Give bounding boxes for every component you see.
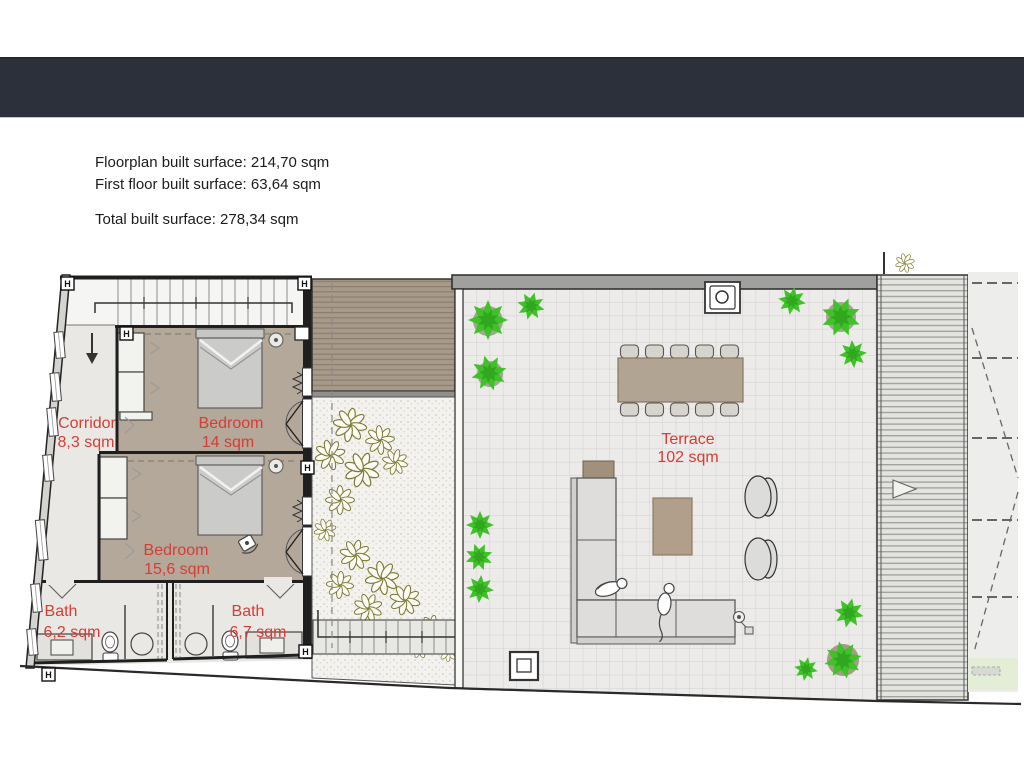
dining-chair <box>671 345 689 358</box>
dining-set <box>618 345 743 416</box>
skylight-icon <box>705 282 740 313</box>
svg-text:H: H <box>304 463 311 473</box>
dining-chair <box>721 403 739 416</box>
terrace-left-wall <box>455 289 463 688</box>
ceiling-light-icon <box>269 333 283 347</box>
bath-1-label: Bath <box>45 603 78 620</box>
ceiling-light-icon <box>269 459 283 473</box>
wall-marker: H <box>301 461 314 474</box>
room-terrace <box>452 275 877 701</box>
wall-nib <box>295 327 309 340</box>
plant-icon <box>892 250 918 276</box>
dining-table <box>618 358 743 402</box>
lounge-chair <box>745 476 777 518</box>
wall-marker: H <box>42 668 55 681</box>
site-margin-east <box>968 272 1018 692</box>
svg-text:H: H <box>64 279 71 289</box>
dining-chair <box>671 403 689 416</box>
wall-marker: H <box>298 277 311 290</box>
corridor-label: Corridor <box>58 415 116 432</box>
dining-chair <box>721 345 739 358</box>
svg-text:H: H <box>45 670 52 680</box>
sofa-headrest <box>583 461 614 478</box>
wall-marker: H <box>299 645 312 658</box>
bath-2-label: Bath <box>232 603 265 620</box>
bed-icon <box>196 456 264 535</box>
svg-text:H: H <box>301 279 308 289</box>
wall-marker: H <box>120 327 133 340</box>
terrace-top-wall <box>452 275 877 289</box>
lounge-chair <box>745 538 777 580</box>
wall-marker: H <box>61 277 74 290</box>
bedroom-2-area: 15,6 sqm <box>144 561 210 578</box>
terrace-label: Terrace <box>661 431 714 448</box>
bath-2-area: 6,7 sqm <box>230 624 287 641</box>
dining-chair <box>696 403 714 416</box>
coffee-table <box>653 498 692 555</box>
toilet-icon <box>102 632 118 661</box>
bedroom-1-area: 14 sqm <box>202 434 254 451</box>
bedroom-1-label: Bedroom <box>199 415 264 432</box>
dining-chair <box>621 403 639 416</box>
bedroom-2-label: Bedroom <box>144 542 209 559</box>
dining-chair <box>621 345 639 358</box>
dining-chair <box>646 403 664 416</box>
bed-icon <box>196 329 264 408</box>
bath-1-area: 6,2 sqm <box>44 624 101 641</box>
dining-chair <box>696 345 714 358</box>
terrace-area: 102 sqm <box>657 449 718 466</box>
corridor-area: 8,3 sqm <box>58 434 115 451</box>
wood-deck <box>312 279 455 393</box>
staircase-upper <box>64 279 312 325</box>
boardwalk-strip <box>877 250 968 700</box>
svg-text:H: H <box>302 647 309 657</box>
floorplan-drawing: H H H H H H Corridor 8,3 sqm Bedroom 14 … <box>0 0 1024 768</box>
floorplan-page: Floorplan built surface: 214,70 sqm Firs… <box>0 0 1024 768</box>
drain-icon <box>510 652 538 680</box>
svg-text:H: H <box>123 329 130 339</box>
dining-chair <box>646 345 664 358</box>
